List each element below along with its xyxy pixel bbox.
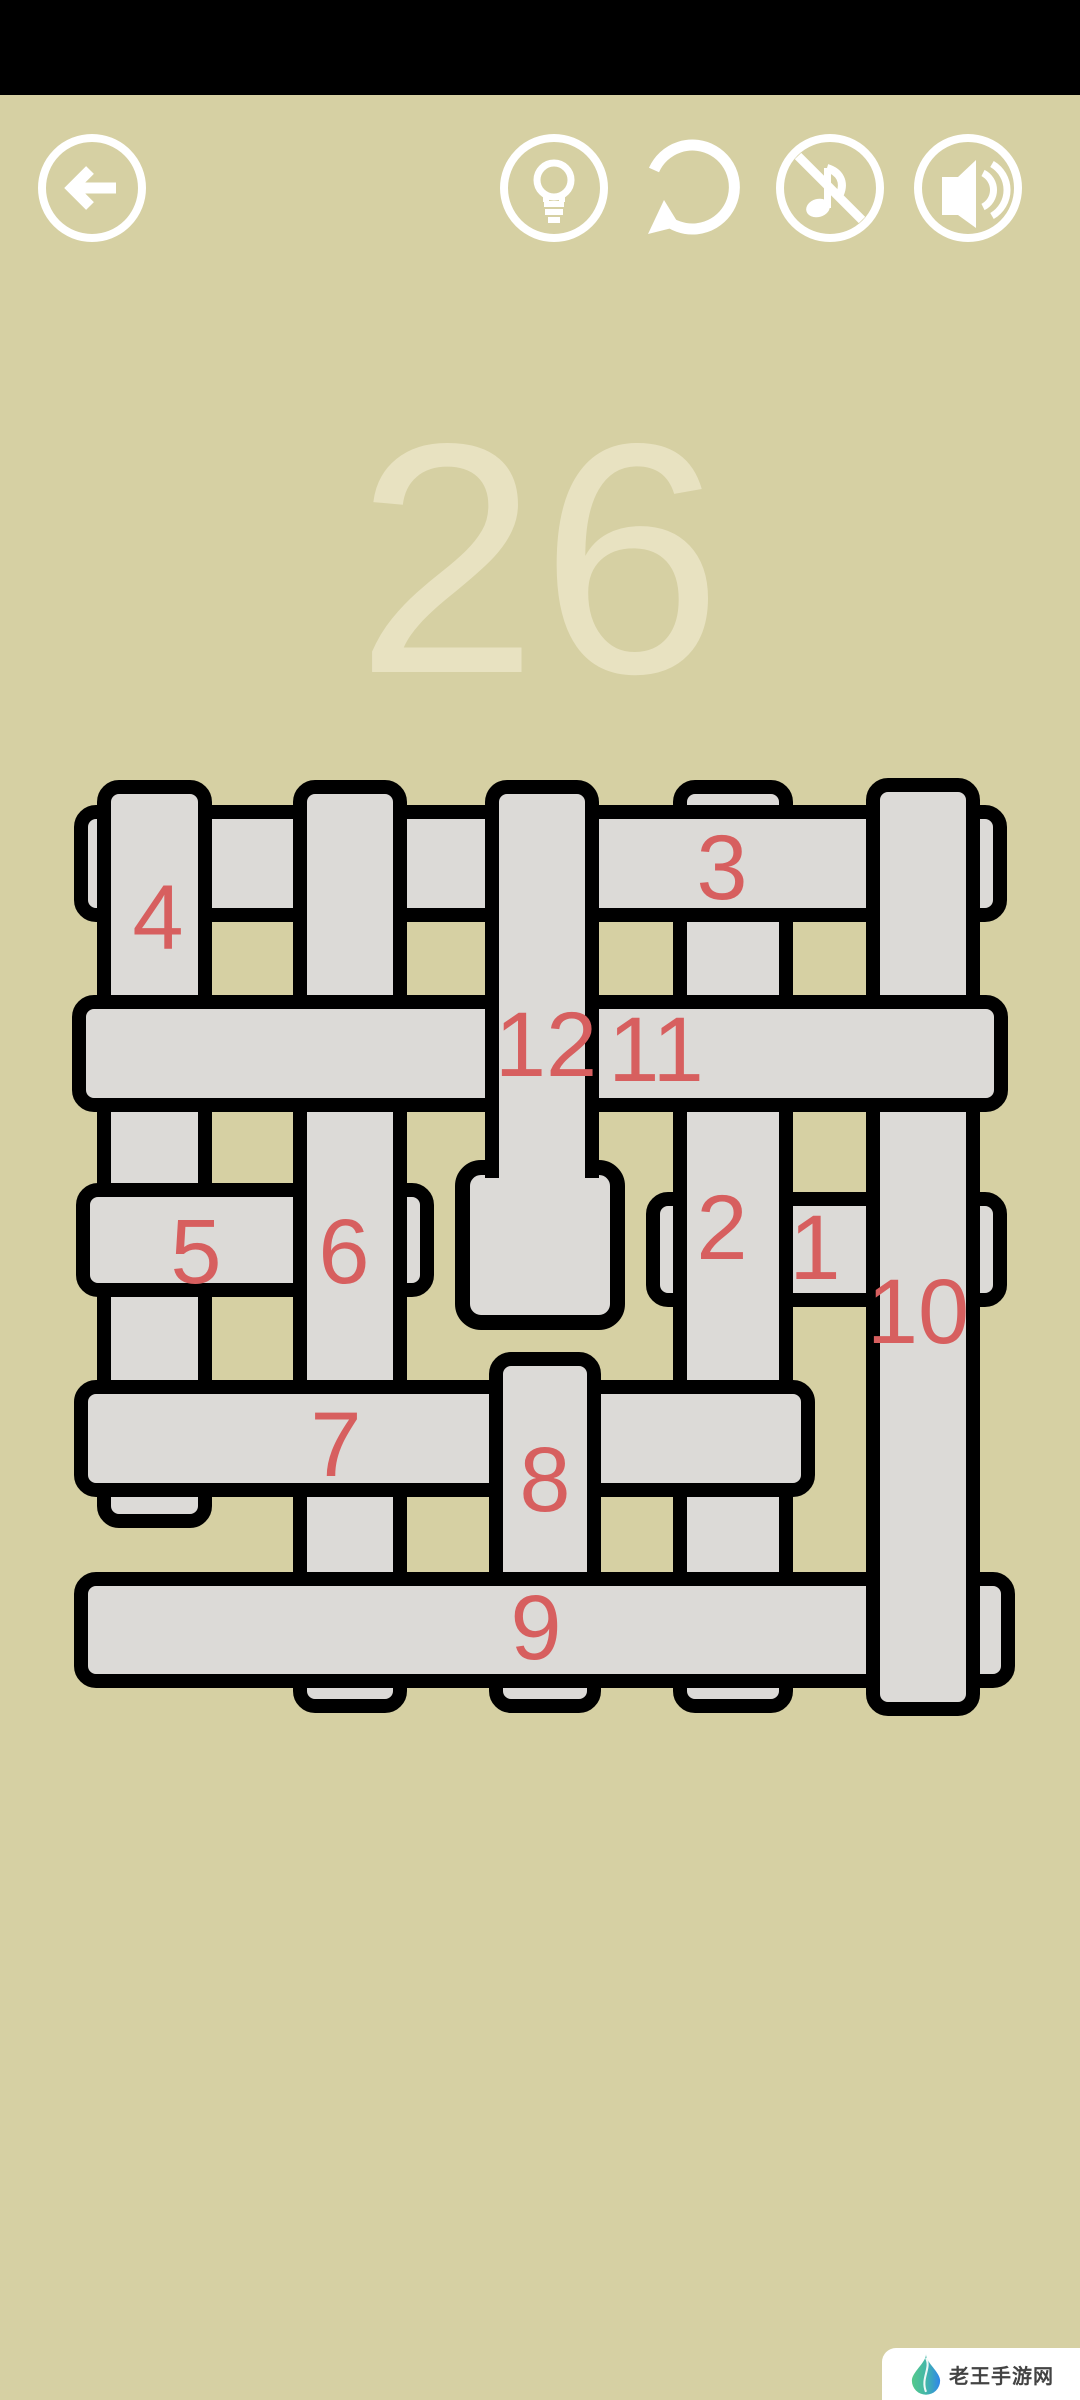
strip-label-5: 5 xyxy=(170,1206,221,1298)
strip-12[interactable] xyxy=(485,780,599,1178)
strip-label-7: 7 xyxy=(310,1399,361,1491)
strip-12-handle[interactable] xyxy=(455,1160,625,1330)
strip-10[interactable] xyxy=(866,778,980,1716)
game-screen: 26 123456789101112 老王手游网 xyxy=(0,0,1080,2400)
strip-label-3: 3 xyxy=(696,822,747,914)
watermark-brand-text: 老王手游网 xyxy=(949,2360,1054,2389)
strip-label-1: 1 xyxy=(789,1202,840,1294)
strip-label-4: 4 xyxy=(132,872,183,964)
puzzle-board: 123456789101112 xyxy=(0,0,1080,2400)
strip-label-8: 8 xyxy=(519,1434,570,1526)
water-drop-logo-icon xyxy=(910,2353,942,2395)
strip-label-6: 6 xyxy=(318,1206,369,1298)
strip-label-10: 10 xyxy=(867,1266,969,1358)
strip-label-2: 2 xyxy=(696,1182,747,1274)
strip-label-11: 11 xyxy=(608,1004,704,1096)
strip-label-9: 9 xyxy=(510,1582,561,1674)
strip-7[interactable] xyxy=(74,1380,815,1497)
strip-label-12: 12 xyxy=(495,999,597,1091)
watermark: 老王手游网 xyxy=(882,2348,1080,2400)
